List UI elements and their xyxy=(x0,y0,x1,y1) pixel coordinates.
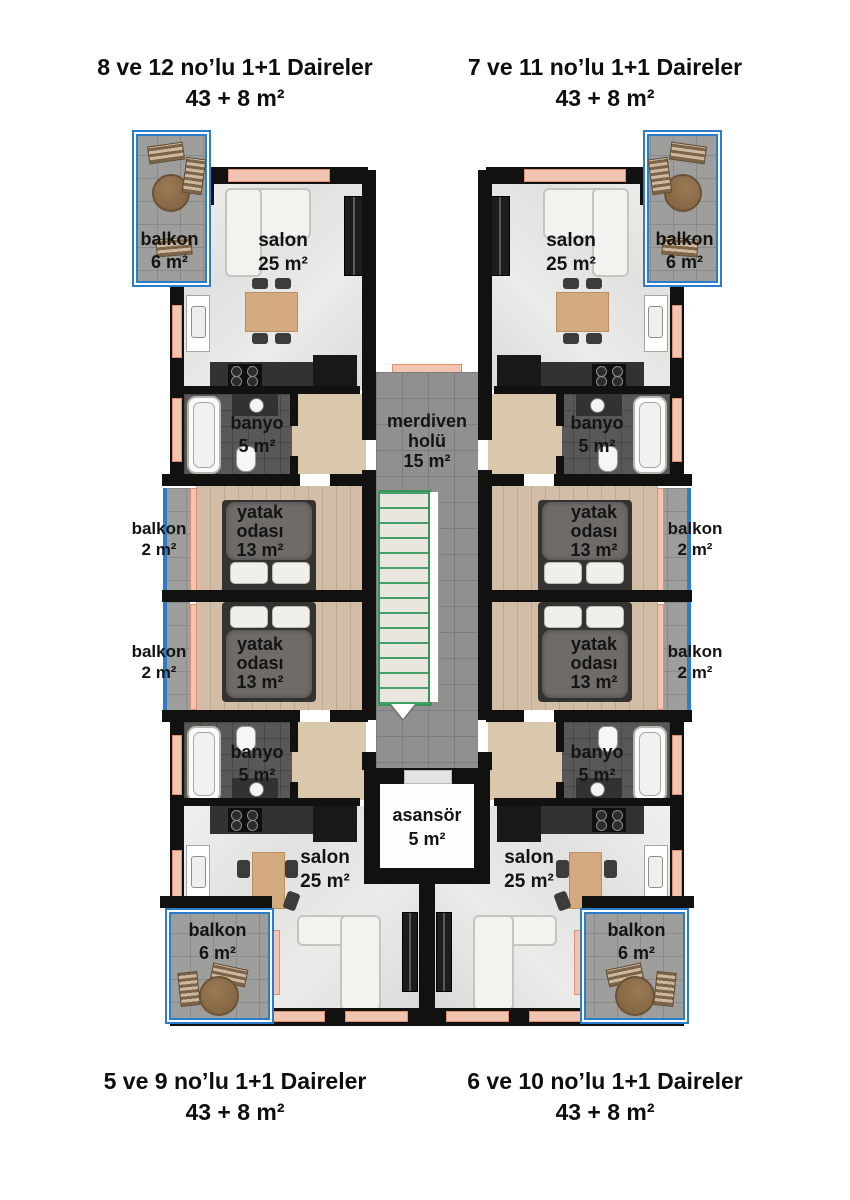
wall-segment xyxy=(478,170,492,372)
central-core: merdiven holü 15 m² asansör 5 m² xyxy=(0,0,850,1200)
elevator-door xyxy=(404,770,452,784)
staircase xyxy=(378,490,432,706)
wall-segment xyxy=(362,470,376,720)
elevator-cab xyxy=(380,784,474,868)
room-area-merdiven: 15 m² xyxy=(376,452,478,470)
room-area-asansor: 5 m² xyxy=(380,830,474,848)
wall-segment xyxy=(362,170,376,372)
floor-plan-page: 8 ve 12 no’lu 1+1 Daireler 43 + 8 m² 7 v… xyxy=(0,0,850,1200)
room-label-merdiven: merdiven xyxy=(376,412,478,430)
stair-direction-arrow xyxy=(391,704,415,719)
wall-segment xyxy=(478,372,492,440)
wall-segment xyxy=(410,1008,444,1026)
wall-segment xyxy=(362,372,376,440)
party-wall xyxy=(419,884,435,1012)
room-label-asansor: asansör xyxy=(380,806,474,824)
wall-segment xyxy=(478,470,492,720)
stair-banister xyxy=(428,492,439,702)
room-label-merdiven: holü xyxy=(376,432,478,450)
